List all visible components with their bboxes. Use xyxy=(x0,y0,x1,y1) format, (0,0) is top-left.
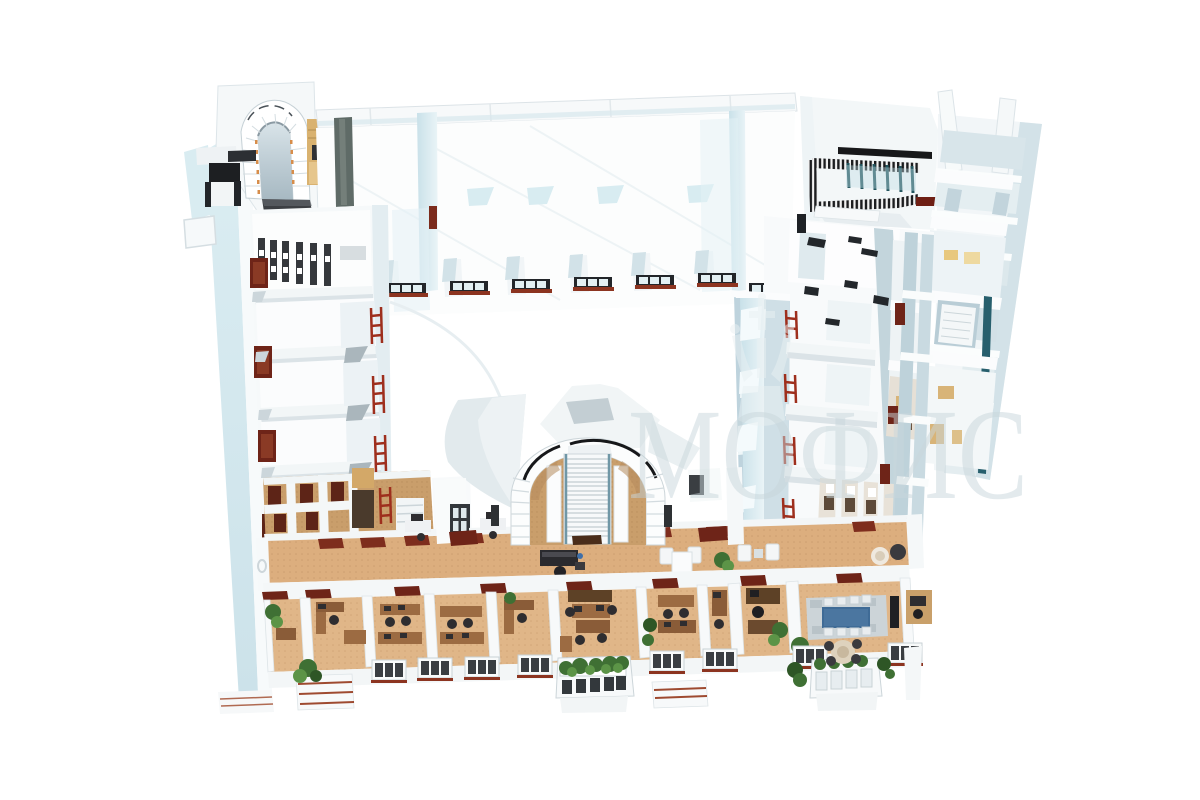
svg-text:МОФИС: МОФИС xyxy=(628,383,1028,527)
